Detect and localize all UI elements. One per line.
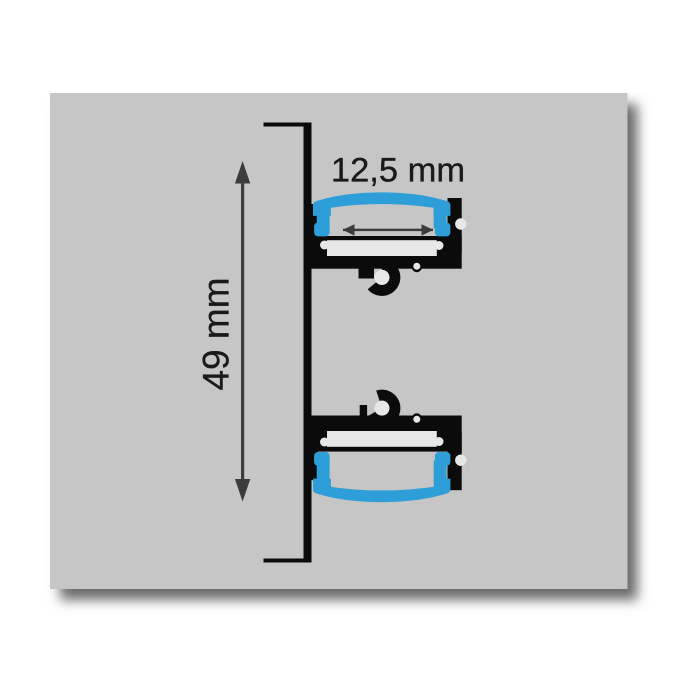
svg-text:49 mm: 49 mm bbox=[196, 277, 237, 390]
svg-text:12,5 mm: 12,5 mm bbox=[331, 152, 465, 190]
